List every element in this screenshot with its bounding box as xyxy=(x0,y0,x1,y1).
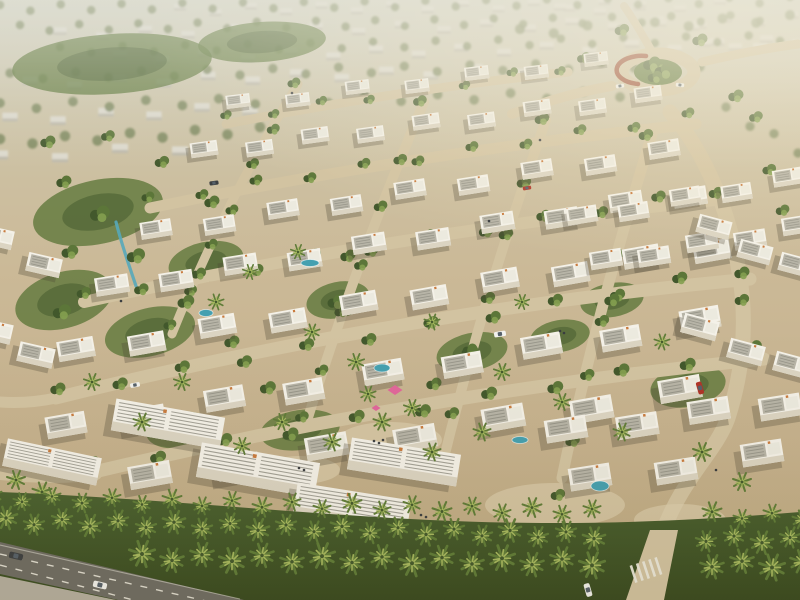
aerial-render xyxy=(0,0,800,600)
warm-grade-overlay xyxy=(0,0,800,600)
aerial-render-stage: Aerial rendering of a master-planned vil… xyxy=(0,0,800,600)
